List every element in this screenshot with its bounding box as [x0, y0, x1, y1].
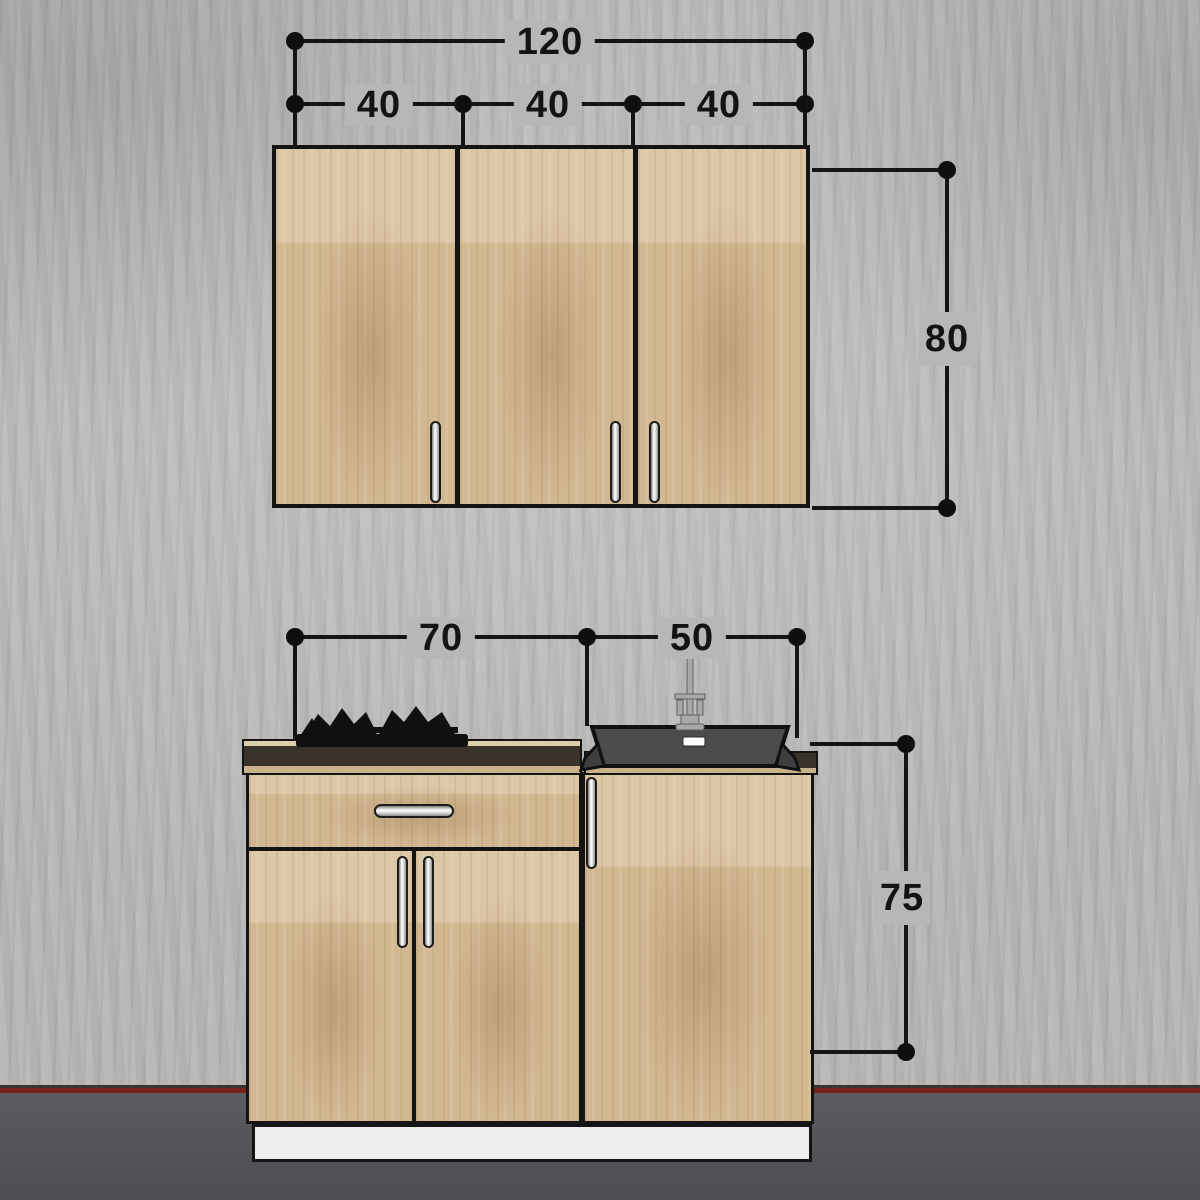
- wall-cabinet-door-2: [460, 149, 633, 504]
- dim-dot: [788, 628, 806, 646]
- dim-dot: [897, 735, 915, 753]
- ext-line: [812, 506, 947, 510]
- base-cabinet-sink-unit: [582, 772, 814, 1124]
- base-left-door-1-handle: [397, 856, 408, 948]
- base-right-door-handle: [586, 777, 597, 869]
- dim-dot: [796, 95, 814, 113]
- dim-dot: [938, 499, 956, 517]
- wall-cabinet-door-1: [276, 149, 455, 504]
- base-cabinet-cooktop-unit: [246, 772, 582, 1124]
- dim-label-overall-width: 120: [505, 21, 595, 63]
- dim-dot: [796, 32, 814, 50]
- dim-label-base-height: 75: [874, 871, 930, 925]
- base-right-door: [585, 775, 811, 1121]
- dim-dot: [624, 95, 642, 113]
- kitchen-dimension-diagram: 120 40 40 40 80 70 50 75: [0, 0, 1200, 1200]
- ext-line: [810, 1050, 906, 1054]
- drawer-handle: [374, 804, 454, 818]
- dim-label-door-1-width: 40: [345, 84, 413, 126]
- dim-dot: [938, 161, 956, 179]
- ext-line: [293, 637, 297, 740]
- base-left-door-1: [249, 851, 412, 1121]
- dim-label-door-3-width: 40: [685, 84, 753, 126]
- wall-door-3-handle: [649, 421, 660, 503]
- dim-dot: [286, 628, 304, 646]
- countertop-right: [584, 751, 818, 775]
- plinth: [252, 1124, 812, 1162]
- ext-line: [810, 742, 906, 746]
- wall-cabinet-door-3: [638, 149, 806, 504]
- dim-dot: [897, 1043, 915, 1061]
- dim-label-wall-height: 80: [919, 312, 975, 366]
- base-left-door-2: [416, 851, 579, 1121]
- dim-dot: [578, 628, 596, 646]
- countertop-left: [242, 739, 582, 775]
- dim-label-sink-unit-width: 50: [658, 617, 726, 659]
- ext-line: [812, 168, 947, 172]
- wall-door-2-handle: [610, 421, 621, 503]
- base-left-door-2-handle: [423, 856, 434, 948]
- wall-door-1-handle: [430, 421, 441, 503]
- wall-cabinet: [272, 145, 810, 508]
- dim-label-cooktop-unit-width: 70: [407, 617, 475, 659]
- ext-line: [585, 637, 589, 726]
- ext-line: [795, 637, 799, 738]
- dim-dot: [454, 95, 472, 113]
- dim-dot: [286, 32, 304, 50]
- dim-dot: [286, 95, 304, 113]
- dim-label-door-2-width: 40: [514, 84, 582, 126]
